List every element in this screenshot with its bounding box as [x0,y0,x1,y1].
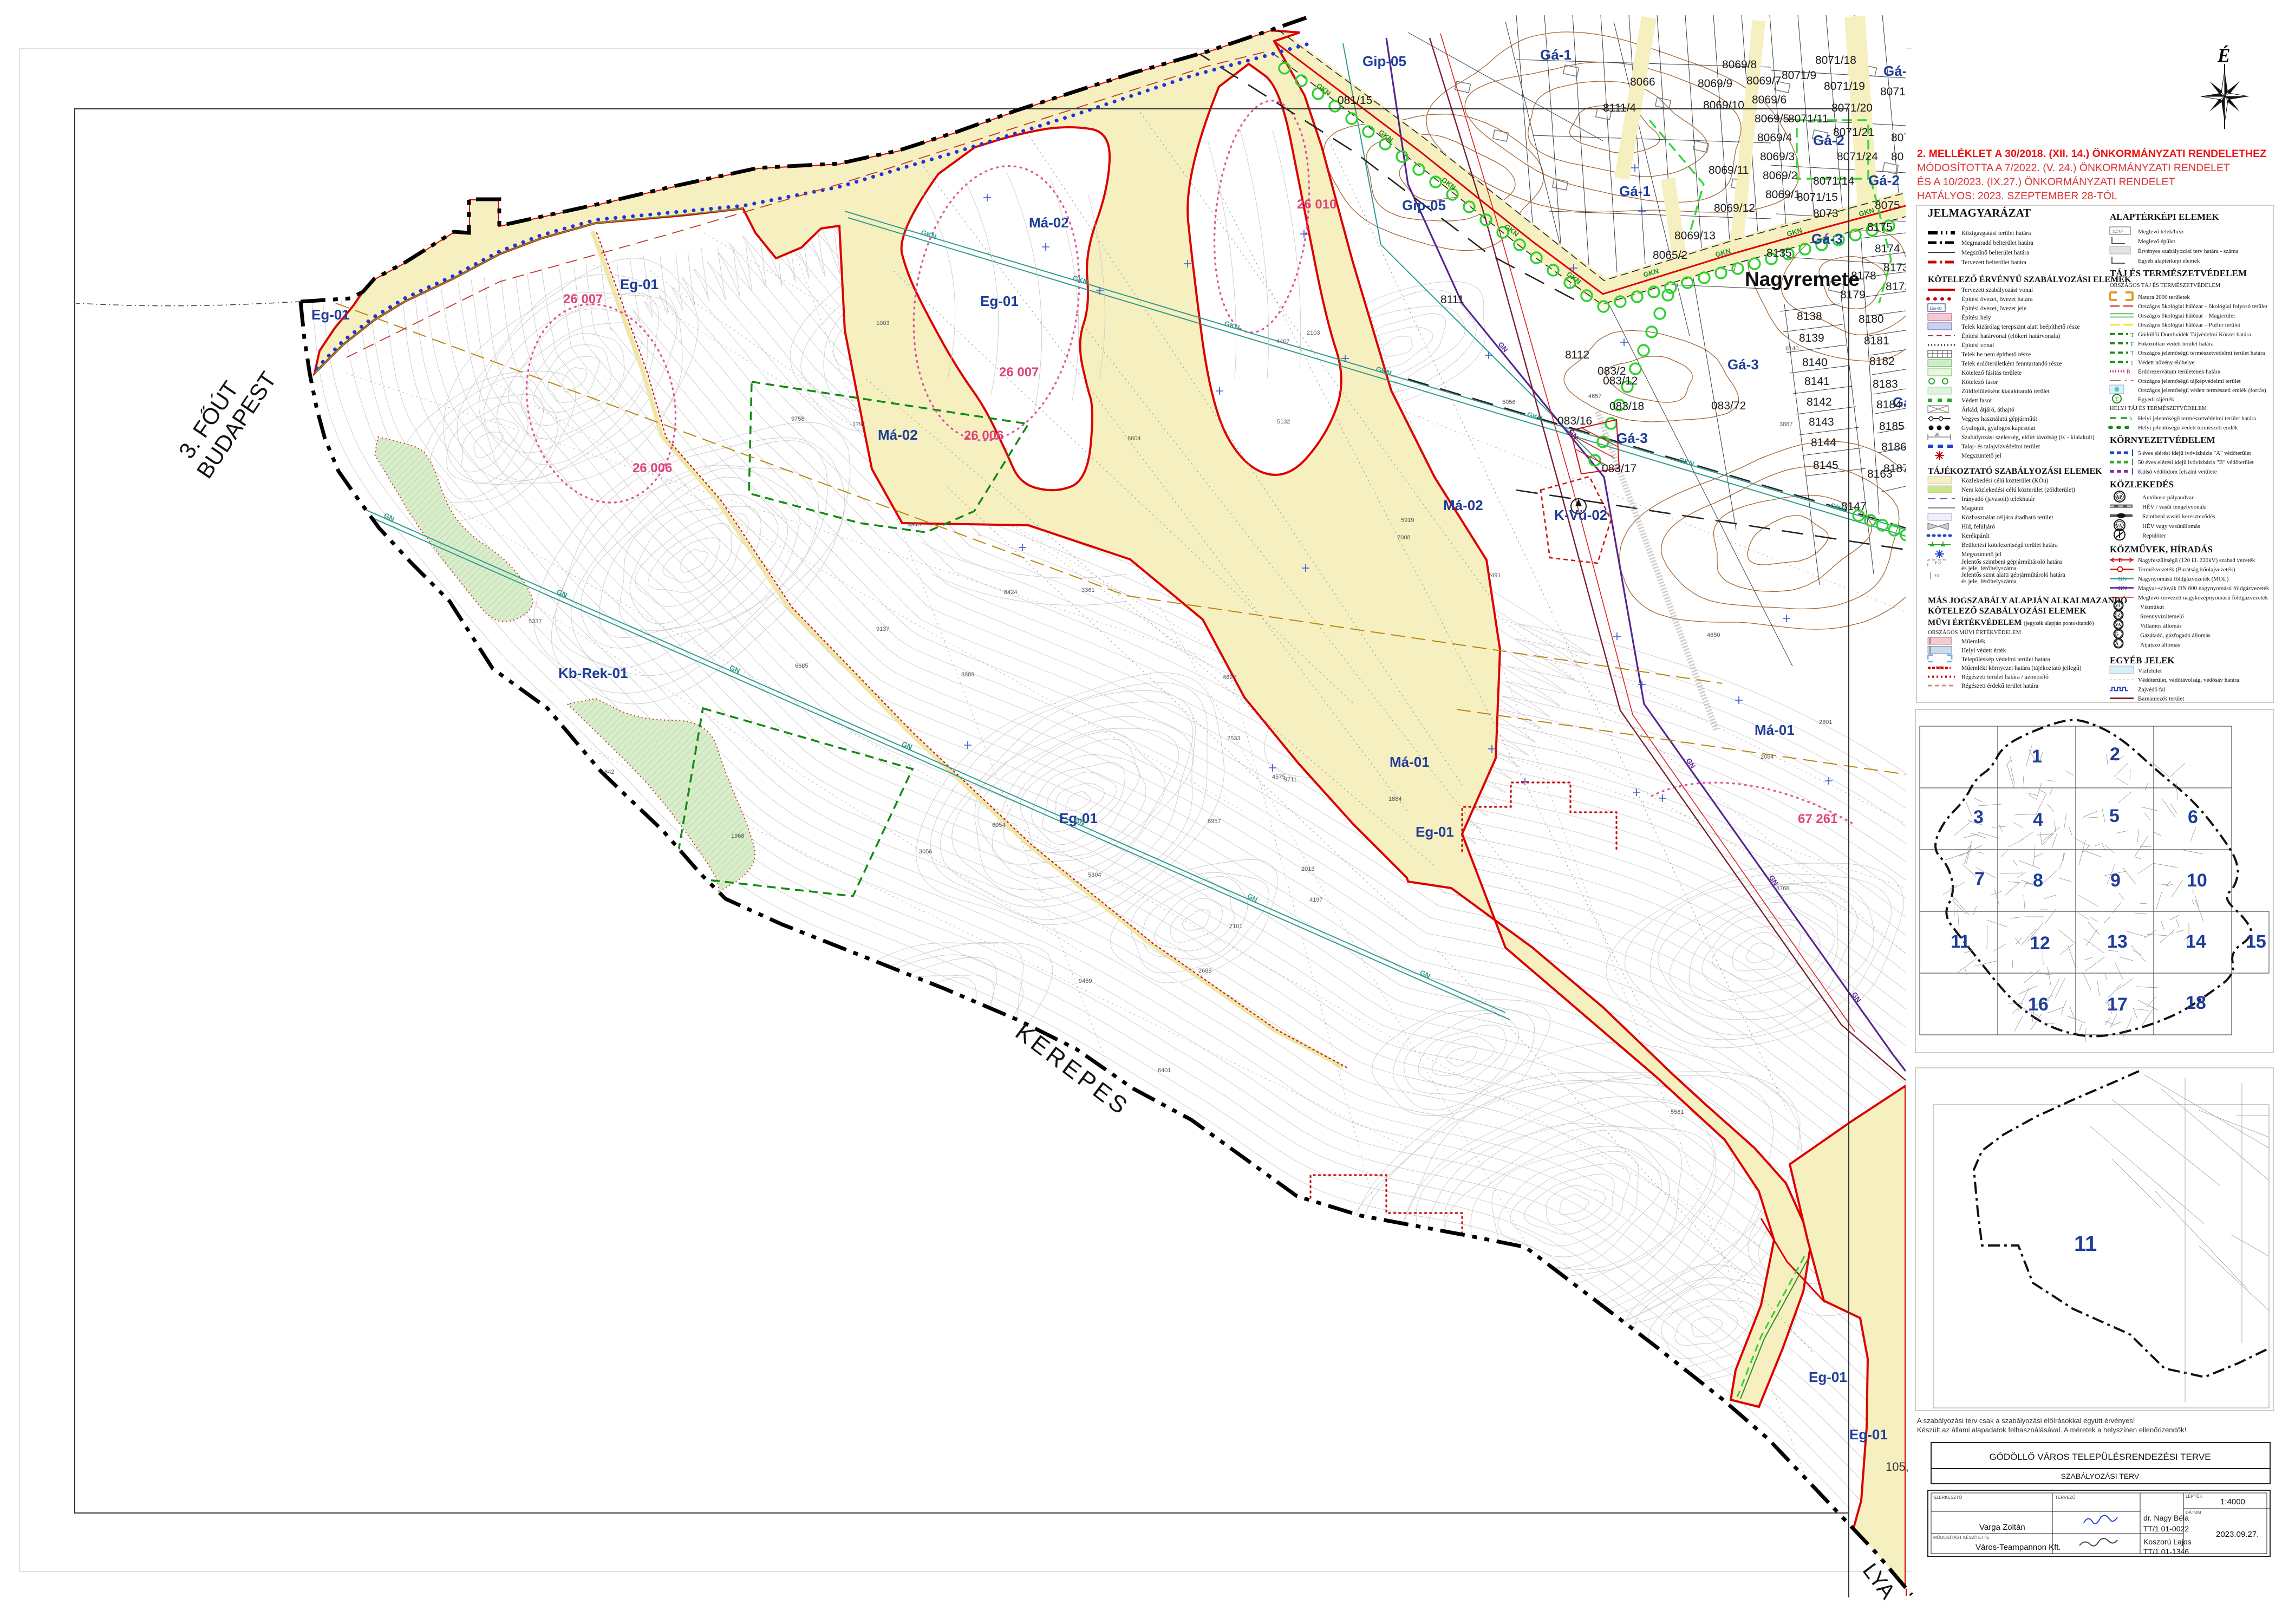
svg-text:Má-02: Má-02 [878,427,918,443]
svg-text:8065/2: 8065/2 [1653,249,1687,262]
svg-text:32767: 32767 [2113,229,2123,234]
svg-text:1003: 1003 [876,320,889,327]
svg-text:2533: 2533 [1227,735,1240,742]
svg-text:Védett fasor: Védett fasor [1961,397,1992,404]
svg-text:Szintbeni vasúti kereszteződés: Szintbeni vasúti kereszteződés [2142,513,2215,520]
svg-text:9758: 9758 [791,416,804,422]
svg-text:Megszűnő belterület határa: Megszűnő belterület határa [1961,250,2029,256]
svg-text:h: h [2129,415,2133,422]
svg-text:8145: 8145 [1813,459,1838,472]
svg-text:081/15: 081/15 [1338,94,1372,107]
svg-text:8111/4: 8111/4 [1603,102,1636,114]
svg-text:4650: 4650 [1707,632,1720,638]
svg-text:083/16: 083/16 [1557,415,1592,427]
svg-text:Közhasználat céljára átadható: Közhasználat céljára átadható terület [1961,514,2053,521]
svg-text:Megszüntető jel: Megszüntető jel [1961,453,2001,459]
svg-text:105,: 105, [1886,1460,1909,1473]
svg-text:HELYI TÁJ ÉS TERMÉSZETVÉDELEM: HELYI TÁJ ÉS TERMÉSZETVÉDELEM [2110,405,2207,412]
svg-text:Eg-01: Eg-01 [311,306,350,323]
svg-text:HATÁLYOS: 2023. SZEPTEMBER 28-: HATÁLYOS: 2023. SZEPTEMBER 28-TÓL [1917,190,2117,202]
svg-text:Helyi jelentőségű védett termé: Helyi jelentőségű védett természeti emlé… [2138,425,2238,431]
svg-text:Védett növény élőhelye: Védett növény élőhelye [2138,359,2195,366]
svg-text:6604: 6604 [1127,435,1140,442]
svg-text:Kb-Rek-01: Kb-Rek-01 [558,665,628,681]
svg-text:Műemlék: Műemlék [1961,638,1985,645]
svg-text:Meglevő épület: Meglevő épület [2138,238,2175,245]
svg-text:T: T [2130,332,2134,338]
svg-text:Város-Teampannon Kft.: Város-Teampannon Kft. [1975,1543,2061,1552]
svg-text:8111: 8111 [1440,294,1464,306]
svg-text:2491: 2491 [1488,572,1501,579]
svg-text:Fokozottan védett terület hatá: Fokozottan védett terület határa [2138,341,2214,347]
svg-text:8071/18: 8071/18 [1815,54,1856,67]
svg-text:8143: 8143 [1809,416,1834,428]
svg-text:1: 1 [2130,360,2134,366]
svg-text:8069/4: 8069/4 [1757,132,1792,144]
svg-text:Gyalogút, gyalogos kapcsolat: Gyalogút, gyalogos kapcsolat [1961,425,2036,432]
svg-text:Építési övezet, övezet határa: Építési övezet, övezet határa [1961,295,2033,303]
svg-text:és jele, férőhelyszáma: és jele, férőhelyszáma [1961,578,2017,585]
svg-text:Meglevő telek/hrsz: Meglevő telek/hrsz [2138,229,2184,235]
svg-text:É: É [2217,45,2230,66]
svg-text:9: 9 [2110,870,2121,891]
svg-text:Építési határvonal (előkert ha: Építési határvonal (előkert határvonala) [1961,332,2060,340]
svg-text:Telek kizárólag terepszint ala: Telek kizárólag terepszint alatt beépíth… [1961,324,2080,330]
svg-text:8140: 8140 [1802,356,1828,369]
svg-text:Régészeti terület határa / azo: Régészeti terület határa / azonosító [1961,674,2049,681]
svg-text:3945: 3945 [908,521,921,528]
svg-text:Érvényes szabályozási terv hat: Érvényes szabályozási terv határa - szám… [2138,248,2238,255]
svg-text:1:4000: 1:4000 [2220,1497,2245,1506]
svg-text:Barnamezős terület: Barnamezős terület [2138,696,2184,702]
svg-text:Helyi jelentőségű természetvéd: Helyi jelentőségű természetvédelmi terül… [2138,415,2256,422]
svg-text:26 006: 26 006 [633,461,672,475]
svg-text:Készült az állami alapadatok f: Készült az állami alapadatok felhasználá… [1917,1426,2186,1434]
svg-text:MÓDOSÍTÁST KÉSZÍTETTE: MÓDOSÍTÁST KÉSZÍTETTE [1933,1535,1989,1540]
svg-text:TT/1 01-1346: TT/1 01-1346 [2143,1547,2189,1556]
svg-text:Zajvédő fal: Zajvédő fal [2138,686,2165,693]
svg-text:80: 80 [1891,151,1903,163]
svg-text:083/18: 083/18 [1609,400,1644,413]
svg-text:dr. Nagy Béla: dr. Nagy Béla [2143,1514,2189,1522]
svg-text:Gip-05: Gip-05 [1402,197,1446,213]
svg-text:4: 4 [2033,810,2043,830]
svg-text:083/72: 083/72 [1711,400,1746,412]
svg-text:T: T [2115,396,2118,402]
svg-text:26 007: 26 007 [563,292,603,306]
svg-text:5304: 5304 [1088,872,1101,878]
svg-text:8135: 8135 [1766,247,1792,259]
svg-text:11: 11 [1951,931,1970,952]
svg-text:8069/6: 8069/6 [1752,94,1787,106]
svg-text:15: 15 [2246,931,2266,952]
svg-text:Telek erdőterületként fenntart: Telek erdőterületként fenntartandó része [1961,361,2062,367]
svg-text:8069/9: 8069/9 [1698,77,1732,90]
svg-text:7008: 7008 [1397,534,1410,541]
svg-text:8184: 8184 [1876,399,1902,411]
svg-text:8173: 8173 [1883,262,1909,274]
svg-text:20: 20 [1935,432,1939,437]
svg-text:8174: 8174 [1875,243,1900,255]
svg-text:1968: 1968 [731,833,744,839]
svg-text:Natura 2000 területek: Natura 2000 területek [2138,294,2190,301]
svg-text:13: 13 [2107,931,2128,952]
svg-text:2103: 2103 [1307,330,1320,336]
svg-text:2013: 2013 [1301,866,1314,872]
svg-text:3056: 3056 [919,849,932,855]
svg-text:Irányadó (javasolt) telekhatár: Irányadó (javasolt) telekhatár [1961,496,2035,503]
svg-text:Gá-1: Gá-1 [1540,47,1572,63]
svg-text:8071/9: 8071/9 [1782,69,1816,82]
svg-text:8163: 8163 [1867,468,1893,480]
svg-text:12: 12 [2030,933,2050,954]
svg-text:4657: 4657 [1588,393,1601,400]
svg-text:Autóbusz-pályaudvar: Autóbusz-pályaudvar [2142,494,2194,501]
svg-text:AP: AP [2116,494,2122,500]
svg-text:T: T [2130,350,2134,357]
svg-text:Országos ökológiai hálózat – P: Országos ökológiai hálózat – Puffer terü… [2138,322,2240,329]
svg-text:Vízfelület: Vízfelület [2138,668,2162,674]
svg-text:HÉV vagy vasútállomás: HÉV vagy vasútállomás [2142,523,2200,530]
svg-text:Építési hely: Építési hely [1961,314,1991,321]
svg-text:Szennyvízátemelő: Szennyvízátemelő [2140,614,2184,620]
svg-text:8069/12: 8069/12 [1714,202,1755,214]
svg-text:Kötelező fasor: Kötelező fasor [1961,379,1998,386]
svg-text:Árkád, átjáró, áthajtó: Árkád, átjáró, áthajtó [1961,406,2014,413]
svg-text:Híd, felüljáró: Híd, felüljáró [1961,524,1995,530]
svg-text:F: F [2130,341,2134,348]
svg-text:8071/14: 8071/14 [1813,175,1854,187]
svg-text:8768: 8768 [1776,885,1789,892]
svg-text:Gá-3: Gá-3 [1811,231,1843,247]
svg-text:Meglevő-tervezett nagyközépnyo: Meglevő-tervezett nagyközépnyomású földg… [2138,595,2268,601]
svg-text:SZERKESZTŐ: SZERKESZTŐ [1933,1495,1962,1500]
svg-text:6401: 6401 [1158,1067,1171,1074]
svg-text:TÁJÉKOZTATÓ SZABÁLYOZÁSI ELEME: TÁJÉKOZTATÓ SZABÁLYOZÁSI ELEMEK [1928,466,2102,476]
svg-text:és jele, férőhelyszáma: és jele, férőhelyszáma [1961,565,2017,572]
svg-text:JELMAGYARÁZAT: JELMAGYARÁZAT [1928,206,2031,219]
svg-text:8075: 8075 [1875,199,1900,212]
svg-text:Zöldfelületként kialakítandó t: Zöldfelületként kialakítandó terület [1961,388,2050,395]
svg-text:8: 8 [2033,870,2043,891]
svg-text:P 27: P 27 [1935,561,1942,565]
svg-text:Jelentős szint alatti gépjármű: Jelentős szint alatti gépjárműtároló hat… [1961,572,2065,578]
svg-text:Eg-01: Eg-01 [620,276,658,292]
svg-text:TERVEZŐ: TERVEZŐ [2055,1495,2076,1500]
svg-text:14: 14 [2186,931,2206,952]
svg-text:1884: 1884 [1388,796,1401,803]
svg-text:Megszüntető jel: Megszüntető jel [1961,551,2001,558]
svg-text:8138: 8138 [1797,310,1822,323]
svg-text:5919: 5919 [1401,517,1414,524]
svg-text:4575: 4575 [1272,774,1285,780]
svg-text:Közlekedési célú közterület (K: Közlekedési célú közterület (KÖu) [1961,477,2049,484]
svg-text:Építési vonal: Építési vonal [1961,341,1994,349]
svg-text:8071/24: 8071/24 [1837,151,1878,163]
svg-text:Gá-1: Gá-1 [1619,183,1651,199]
svg-text:1: 1 [2032,746,2042,767]
svg-text:50 éves elérési idejű ivóvízbá: 50 éves elérési idejű ivóvízbázis "B" vé… [2138,459,2254,466]
svg-text:Megmaradó belterület határa: Megmaradó belterület határa [1961,240,2033,246]
svg-text:6685: 6685 [795,663,808,669]
svg-text:Jelentős szintbeni gépjárműtár: Jelentős szintbeni gépjárműtároló határa [1961,559,2062,565]
svg-text:6: 6 [2188,807,2198,827]
svg-text:ALAPTÉRKÉPI ELEMEK: ALAPTÉRKÉPI ELEMEK [2110,212,2219,222]
svg-text:Műemléki környezet határa (táj: Műemléki környezet határa (tájékoztató j… [1961,665,2082,671]
svg-text:8069/3: 8069/3 [1760,151,1795,163]
svg-text:8069/5: 8069/5 [1755,113,1789,125]
svg-text:8069/13: 8069/13 [1674,230,1716,242]
svg-text:Eg-01: Eg-01 [1416,824,1454,840]
svg-text:5132: 5132 [1277,419,1290,425]
svg-text:27F: 27F [1934,574,1940,578]
svg-text:VA: VA [2116,523,2122,529]
svg-text:083/17: 083/17 [1602,462,1637,475]
svg-text:2688: 2688 [1198,968,1211,974]
svg-text:8144: 8144 [1811,436,1836,449]
svg-text:8069/8: 8069/8 [1722,58,1757,71]
svg-text:5: 5 [2109,806,2120,826]
svg-text:Országos jelentőségű tájképvéd: Országos jelentőségű tájképvédelmi terül… [2138,378,2241,384]
svg-text:8142: 8142 [1807,396,1832,408]
svg-text:TT/1 01-0022: TT/1 01-0022 [2143,1524,2189,1533]
svg-text:Helyi védett érték: Helyi védett érték [1961,647,2006,654]
svg-text:G: G [2115,632,2118,637]
svg-text:Országos jelentőségű természet: Országos jelentőségű természetvédelmi te… [2138,350,2265,356]
svg-text:Tervezett szabályozási vonal: Tervezett szabályozási vonal [1961,287,2033,294]
svg-text:6054: 6054 [992,822,1005,829]
svg-text:GÖDÖLLŐ VÁROS TELEPÜLÉSRENDEZÉ: GÖDÖLLŐ VÁROS TELEPÜLÉSRENDEZÉSI TERVE [1989,1452,2211,1462]
svg-text:67 261: 67 261 [1798,812,1837,826]
svg-text:SZABÁLYOZÁSI TERV: SZABÁLYOZÁSI TERV [2061,1472,2140,1480]
svg-text:Repülőtér: Repülőtér [2142,532,2166,539]
svg-text:6140: 6140 [1785,345,1798,352]
svg-text:9459: 9459 [1079,978,1092,984]
svg-text:9137: 9137 [876,626,889,632]
svg-text:8069/11: 8069/11 [1709,164,1749,177]
svg-text:3361: 3361 [1081,587,1094,593]
svg-text:8182: 8182 [1869,355,1895,368]
svg-text:ORSZÁGOS TÁJ ÉS TERMÉSZETVÉDEL: ORSZÁGOS TÁJ ÉS TERMÉSZETVÉDELEM [2110,282,2221,289]
svg-text:KÖTELEZŐ SZABÁLYOZÁSI ELEMEK: KÖTELEZŐ SZABÁLYOZÁSI ELEMEK [1928,605,2087,616]
svg-text:5337: 5337 [529,618,542,625]
svg-text:8066: 8066 [1630,76,1655,88]
svg-text:Gödöllői Dombvidék Tájvédelmi: Gödöllői Dombvidék Tájvédelmi Körzet hat… [2138,331,2251,338]
svg-text:Eg-01: Eg-01 [1809,1369,1847,1385]
svg-text:8180: 8180 [1859,313,1884,325]
svg-text:Építési övezet, övezet jele: Építési övezet, övezet jele [1961,304,2026,312]
svg-text:Varga Zoltán: Varga Zoltán [1979,1523,2025,1532]
svg-text:LÉPTÉK: LÉPTÉK [2186,1494,2202,1499]
svg-text:8073: 8073 [1813,207,1838,220]
svg-text:7: 7 [1974,869,1985,889]
svg-text:8069/10: 8069/10 [1703,99,1744,112]
svg-text:16: 16 [2028,994,2049,1015]
svg-text:EGYÉB JELEK: EGYÉB JELEK [2110,655,2175,666]
svg-text:MK: MK [1936,666,1944,670]
svg-text:Vízműkút: Vízműkút [2140,604,2164,610]
svg-text:Külső védőidom felszíni vetüle: Külső védőidom felszíni vetülete [2138,468,2217,475]
svg-text:Régészeti érdekű terület határ: Régészeti érdekű terület határa [1961,683,2038,689]
svg-text:Gázátadó, gázfogadó állomás: Gázátadó, gázfogadó állomás [2140,632,2211,639]
svg-text:26 006: 26 006 [964,428,1003,443]
svg-text:8071/20: 8071/20 [1831,102,1873,114]
svg-text:8181: 8181 [1864,335,1889,347]
svg-text:Tervezett belterület határa: Tervezett belterület határa [1961,259,2026,266]
svg-text:Országos jelentőségű védett te: Országos jelentőségű védett természeti e… [2138,387,2266,394]
svg-text:2801: 2801 [1819,719,1832,726]
svg-text:GN: GN [2118,585,2127,592]
svg-text:Vegyes használatú gépjárműút: Vegyes használatú gépjárműút [1961,416,2038,422]
svg-text:Nem közlekedési célú közterüle: Nem közlekedési célú közterület (zöldter… [1961,487,2075,493]
svg-text:K-Vü-02: K-Vü-02 [1554,507,1607,523]
svg-text:A szabályozási terv csak a sza: A szabályozási terv csak a szabályozási … [1917,1417,2135,1425]
svg-text:10: 10 [2187,870,2207,891]
svg-text:Magyar-szlovák DN 800 nagynyom: Magyar-szlovák DN 800 nagynyomású földgá… [2138,585,2270,592]
svg-text:Egyedi tájérték: Egyedi tájérték [2138,396,2174,403]
svg-text:8141: 8141 [1804,375,1830,388]
svg-text:26 007: 26 007 [999,365,1039,380]
svg-text:8179: 8179 [1840,289,1866,301]
svg-text:3887: 3887 [1779,421,1792,428]
svg-text:Á: Á [2115,641,2118,646]
svg-text:Egyéb alaptérképi elemek: Egyéb alaptérképi elemek [2138,258,2200,264]
svg-text:8186: 8186 [1881,441,1907,453]
svg-text:2023.09.27.: 2023.09.27. [2216,1530,2259,1539]
svg-text:Lke-01: Lke-01 [1929,306,1942,311]
svg-text:4407: 4407 [1276,338,1289,345]
svg-text:26 010: 26 010 [1297,197,1336,212]
svg-text:2064: 2064 [1761,754,1774,760]
svg-text:Má-01: Má-01 [1390,754,1430,770]
svg-text:4622: 4622 [1223,674,1236,681]
svg-text:Gá-3: Gá-3 [1727,356,1759,373]
svg-text:Magánút: Magánút [1961,505,1984,512]
svg-text:8071/11: 8071/11 [1788,113,1828,125]
svg-text:Nagyfeszültségű (120 ill. 220k: Nagyfeszültségű (120 ill. 220kV) szabad … [2138,557,2255,564]
svg-text:8183: 8183 [1873,378,1898,390]
svg-text:Koszorú Lajos: Koszorú Lajos [2143,1537,2192,1546]
svg-text:MÁS JOGSZABÁLY ALAPJÁN ALKALMA: MÁS JOGSZABÁLY ALAPJÁN ALKALMAZANDÓ [1928,595,2127,605]
svg-text:Villamos állomás: Villamos állomás [2140,623,2182,629]
svg-text:17: 17 [2107,994,2128,1015]
svg-text:Erdőrezervátum területének hat: Erdőrezervátum területének határa [2138,369,2220,375]
svg-text:Átjátszó állomás: Átjátszó állomás [2140,642,2180,648]
svg-text:R: R [2127,369,2131,375]
svg-text:ORSZÁGOS MŰVI ÉRTÉKVÉDELEM: ORSZÁGOS MŰVI ÉRTÉKVÉDELEM [1928,629,2022,636]
svg-text:8069/7: 8069/7 [1746,75,1781,87]
svg-text:8069/2: 8069/2 [1763,169,1797,182]
svg-text:ÉS A 10/2023. (IX.27.) ÖNKORMÁ: ÉS A 10/2023. (IX.27.) ÖNKORMÁNYZATI REN… [1917,175,2175,188]
svg-text:3: 3 [1973,807,1984,827]
svg-text:1791: 1791 [852,421,865,428]
svg-text:7101: 7101 [1229,923,1242,930]
svg-text:Nagyremete: Nagyremete [1745,268,1860,290]
svg-text:Közigazgatási terület határa: Közigazgatási terület határa [1961,230,2031,237]
svg-text:4197: 4197 [1309,897,1322,903]
svg-text:Talaj- és talajvízvédelmi terü: Talaj- és talajvízvédelmi terület [1961,443,2040,450]
svg-text:8889: 8889 [961,671,974,678]
svg-text:Má-01: Má-01 [1755,722,1795,738]
svg-text:KÖRNYEZETVÉDELEM: KÖRNYEZETVÉDELEM [2110,435,2215,445]
svg-text:KÖZLEKEDÉS: KÖZLEKEDÉS [2110,479,2174,490]
svg-text:KÖZMŰVEK, HÍRADÁS: KÖZMŰVEK, HÍRADÁS [2110,544,2213,555]
svg-text:11: 11 [2074,1232,2097,1256]
svg-text:5561: 5561 [1671,1109,1684,1116]
svg-text:Eg-01: Eg-01 [980,293,1019,309]
svg-text:083/12: 083/12 [1603,375,1638,387]
svg-text:8071/21: 8071/21 [1833,126,1874,139]
svg-text:8069/1: 8069/1 [1765,188,1800,201]
svg-text:8139: 8139 [1799,332,1824,344]
svg-text:Nagynyomású földgázvezeték (MO: Nagynyomású földgázvezeték (MOL) [2138,576,2229,582]
svg-text:KÖTELEZŐ ÉRVÉNYŰ SZABÁLYOZÁSI: KÖTELEZŐ ÉRVÉNYŰ SZABÁLYOZÁSI ELEMEK [1928,274,2131,284]
svg-text:8071/19: 8071/19 [1824,80,1865,93]
svg-text:18: 18 [2186,993,2206,1013]
svg-text:8424: 8424 [1004,589,1017,596]
svg-text:Kötelező fásítás területe: Kötelező fásítás területe [1961,370,2022,376]
svg-text:Védőterület, védőtávolság, véd: Védőterület, védőtávolság, védősáv határ… [2138,677,2239,683]
svg-text:2: 2 [2110,744,2120,765]
svg-text:8175: 8175 [1867,221,1893,233]
svg-text:SZT: SZT [2115,613,2124,618]
svg-text:8185: 8185 [1879,420,1905,433]
svg-text:TÁJ ÉS TERMÉSZETVÉDELEM: TÁJ ÉS TERMÉSZETVÉDELEM [2110,268,2247,278]
svg-text:VÍ: VÍ [2115,603,2120,608]
svg-text:E: E [2118,557,2122,564]
svg-text:Országos ökológiai hálózat – M: Országos ökológiai hálózat – Magterület [2138,312,2235,319]
svg-text:HÉV / vasút tengelyvonala: HÉV / vasút tengelyvonala [2142,504,2207,511]
svg-text:GN: GN [2118,576,2127,582]
svg-text:Eg-01: Eg-01 [1849,1426,1888,1443]
svg-text:6957: 6957 [1208,818,1221,825]
svg-text:Szabályozási szélesség, előírt: Szabályozási szélesség, előírt távolság … [1961,434,2095,441]
svg-text:Gip-05: Gip-05 [1362,53,1406,69]
svg-text:Termékvezeték (Barátság kőolaj: Termékvezeték (Barátság kőolajvezeték) [2138,566,2235,573]
svg-text:MÓDOSÍTOTTA A 7/2022. (V. 24.: MÓDOSÍTOTTA A 7/2022. (V. 24.) ÖNKORMÁNY… [1917,161,2230,174]
svg-text:Telek be nem építhető része: Telek be nem építhető része [1961,351,2031,358]
svg-text:2. MELLÉKLET A 30/2018. (XII.: 2. MELLÉKLET A 30/2018. (XII. 14.) ÖNKOR… [1917,147,2266,160]
svg-text:8071/15: 8071/15 [1797,191,1838,204]
svg-text:9711: 9711 [1284,777,1297,783]
svg-text:8112: 8112 [1565,349,1589,361]
svg-text:Má-02: Má-02 [1443,497,1483,513]
svg-text:5056: 5056 [1502,399,1515,406]
svg-text:5 éves elérési idejű ivóvízbáz: 5 éves elérési idejű ivóvízbázis "A" véd… [2138,450,2251,456]
svg-text:Beültetési kötelezettségű terü: Beültetési kötelezettségű terület határa [1961,542,2058,549]
svg-text:Kerékpárút: Kerékpárút [1961,533,1990,539]
svg-text:Gá-2: Gá-2 [1868,172,1900,188]
svg-text:Településkép védelmi terület h: Településkép védelmi terület határa [1961,656,2050,663]
svg-text:VA: VA [2115,622,2121,627]
svg-text:Gá-3: Gá-3 [1616,430,1648,446]
svg-text:Országos ökológiai hálózat – ö: Országos ökológiai hálózat – ökológiai f… [2138,303,2267,310]
